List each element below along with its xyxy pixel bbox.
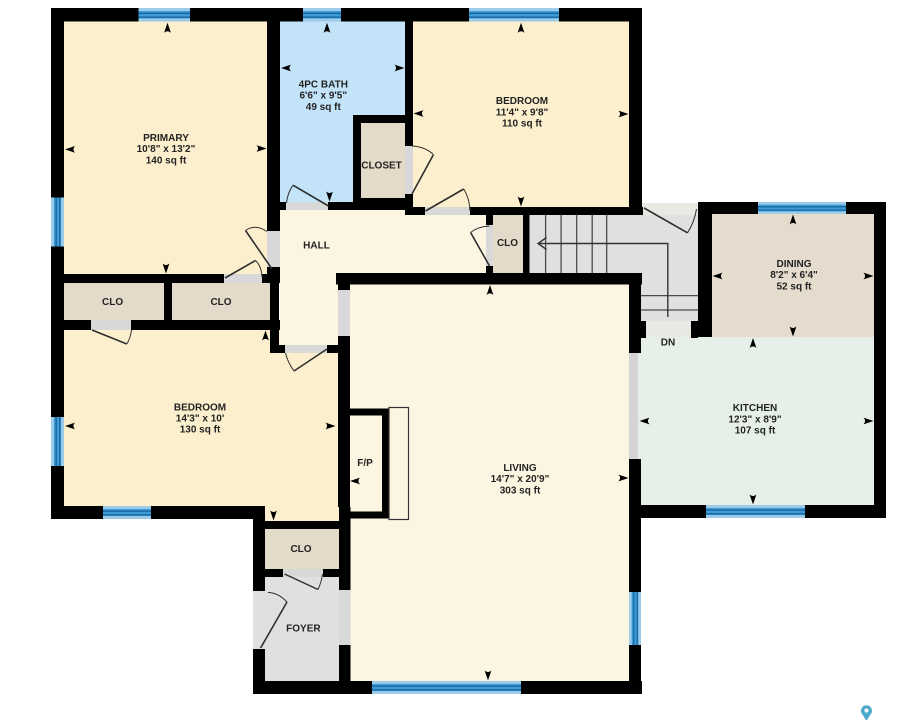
svg-text:4PC BATH: 4PC BATH bbox=[299, 80, 348, 91]
svg-text:DN: DN bbox=[661, 338, 675, 349]
svg-text:CLOSET: CLOSET bbox=[361, 161, 402, 172]
svg-text:HALL: HALL bbox=[303, 241, 330, 252]
svg-text:11'4" x 9'8": 11'4" x 9'8" bbox=[496, 107, 549, 118]
svg-text:303 sq ft: 303 sq ft bbox=[500, 485, 541, 496]
svg-text:49 sq ft: 49 sq ft bbox=[306, 102, 342, 113]
svg-text:PRIMARY: PRIMARY bbox=[143, 133, 189, 144]
svg-text:8'2" x 6'4": 8'2" x 6'4" bbox=[770, 270, 818, 281]
svg-text:CLO: CLO bbox=[497, 238, 518, 249]
svg-text:KITCHEN: KITCHEN bbox=[733, 403, 777, 414]
svg-text:6'6" x 9'5": 6'6" x 9'5" bbox=[299, 91, 347, 102]
svg-text:LIVING: LIVING bbox=[503, 463, 537, 474]
svg-text:12'3" x 8'9": 12'3" x 8'9" bbox=[728, 414, 781, 425]
svg-text:140 sq ft: 140 sq ft bbox=[146, 155, 187, 166]
svg-text:F/P: F/P bbox=[357, 458, 373, 469]
svg-text:10'8" x 13'2": 10'8" x 13'2" bbox=[137, 144, 196, 155]
svg-text:130 sq ft: 130 sq ft bbox=[180, 425, 221, 436]
svg-text:14'7" x 20'9": 14'7" x 20'9" bbox=[491, 474, 550, 485]
svg-text:BEDROOM: BEDROOM bbox=[496, 96, 548, 107]
svg-text:14'3" x 10': 14'3" x 10' bbox=[176, 414, 224, 425]
svg-text:CLO: CLO bbox=[210, 297, 231, 308]
svg-text:110 sq ft: 110 sq ft bbox=[502, 119, 543, 130]
svg-text:52 sq ft: 52 sq ft bbox=[776, 281, 812, 292]
svg-text:CLO: CLO bbox=[290, 544, 311, 555]
svg-text:BEDROOM: BEDROOM bbox=[174, 402, 226, 413]
svg-text:DINING: DINING bbox=[777, 259, 812, 270]
svg-text:CLO: CLO bbox=[102, 297, 123, 308]
svg-text:107 sq ft: 107 sq ft bbox=[735, 426, 776, 437]
svg-text:FOYER: FOYER bbox=[286, 624, 321, 635]
